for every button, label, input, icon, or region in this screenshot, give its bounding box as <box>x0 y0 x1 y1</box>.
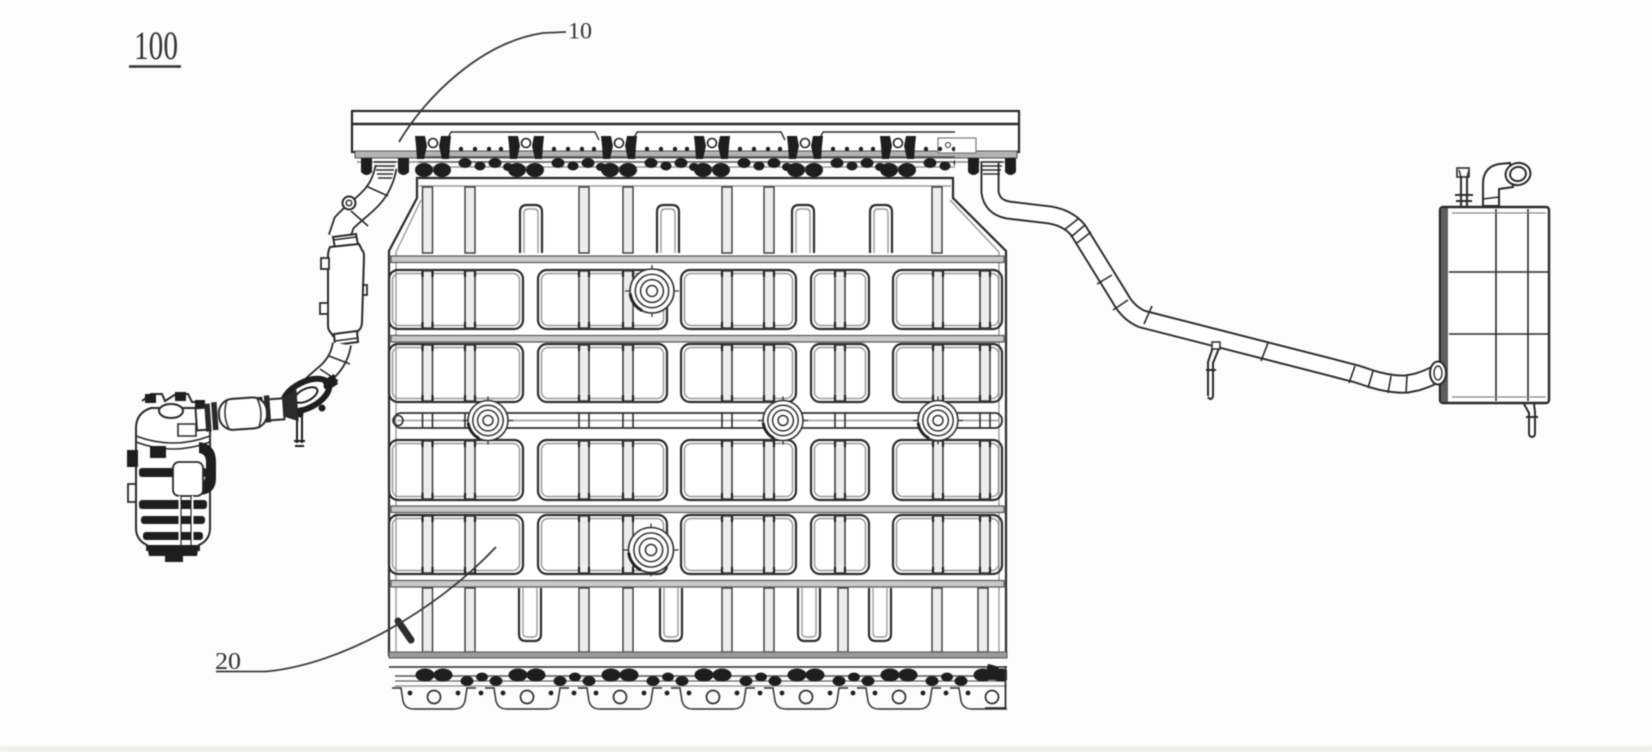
svg-text:100: 100 <box>134 23 178 68</box>
svg-text:10: 10 <box>568 19 592 44</box>
